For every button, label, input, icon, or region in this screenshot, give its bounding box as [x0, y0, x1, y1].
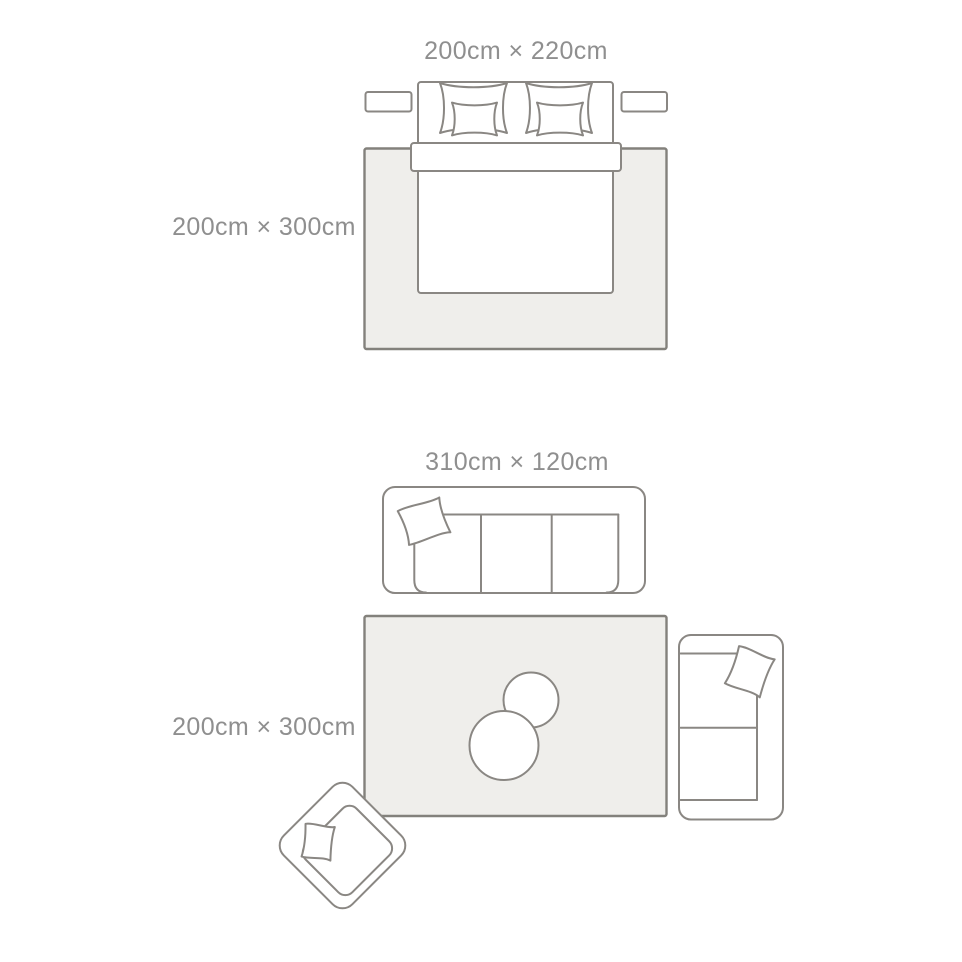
armchair-pillow: [301, 823, 335, 861]
nightstand-left: [366, 92, 412, 112]
bedroom-furniture-size-label: 200cm × 220cm: [336, 37, 696, 66]
living-room-furniture-size-label: 310cm × 120cm: [337, 448, 697, 477]
bed-pillow-left-small: [452, 103, 497, 136]
bedroom-rug-size-label: 200cm × 300cm: [172, 213, 356, 242]
sofa: [383, 487, 645, 593]
size-guide-illustration: [0, 0, 962, 962]
bed-blanket-fold: [411, 143, 621, 171]
rug-size-guide-diagram: 200cm × 220cm 200cm × 300cm 310cm × 120c…: [0, 0, 962, 962]
nightstand-right: [622, 92, 668, 112]
living-room-scene: [274, 487, 783, 914]
bed-pillow-right-small: [537, 103, 583, 136]
coffee-table-large: [470, 711, 539, 780]
bedroom-scene: [365, 82, 668, 349]
living-room-rug-size-label: 200cm × 300cm: [172, 713, 356, 742]
loveseat: [679, 635, 783, 820]
